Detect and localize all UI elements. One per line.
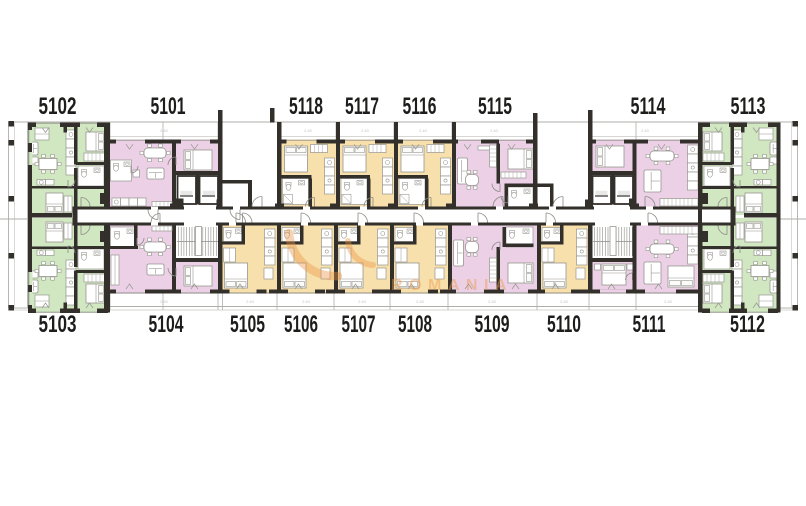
svg-text:2.40: 2.40 [664, 299, 673, 304]
svg-text:2.40: 2.40 [160, 299, 169, 304]
svg-text:2.40: 2.40 [160, 128, 169, 133]
svg-text:5108: 5108 [398, 311, 432, 338]
svg-text:2.40: 2.40 [419, 128, 428, 133]
svg-text:5116: 5116 [403, 93, 437, 120]
svg-text:2.40: 2.40 [304, 128, 313, 133]
svg-text:2.40: 2.40 [490, 128, 499, 133]
svg-text:2.40: 2.40 [560, 299, 569, 304]
svg-text:5118: 5118 [289, 93, 323, 120]
svg-text:5107: 5107 [342, 311, 376, 338]
svg-text:5106: 5106 [284, 311, 318, 338]
svg-text:5114: 5114 [631, 93, 666, 120]
svg-text:5113: 5113 [731, 93, 766, 120]
svg-text:5111: 5111 [633, 311, 666, 338]
svg-text:5102: 5102 [39, 93, 77, 120]
svg-text:5117: 5117 [345, 93, 379, 120]
svg-text:5104: 5104 [149, 311, 184, 338]
svg-text:5105: 5105 [230, 311, 265, 338]
svg-text:5115: 5115 [478, 93, 512, 120]
svg-text:2.40: 2.40 [302, 299, 311, 304]
svg-text:2.40: 2.40 [416, 299, 425, 304]
svg-text:5101: 5101 [151, 93, 186, 120]
svg-text:2.40: 2.40 [246, 299, 255, 304]
svg-text:5103: 5103 [39, 311, 77, 338]
svg-text:2.40: 2.40 [488, 299, 497, 304]
svg-text:5109: 5109 [475, 311, 510, 338]
svg-text:2.40: 2.40 [358, 299, 367, 304]
svg-text:2.40: 2.40 [641, 128, 650, 133]
svg-text:5110: 5110 [547, 311, 581, 338]
svg-text:5112: 5112 [730, 311, 765, 338]
svg-text:ROMANIA: ROMANIA [391, 277, 513, 294]
svg-text:2.40: 2.40 [361, 128, 370, 133]
